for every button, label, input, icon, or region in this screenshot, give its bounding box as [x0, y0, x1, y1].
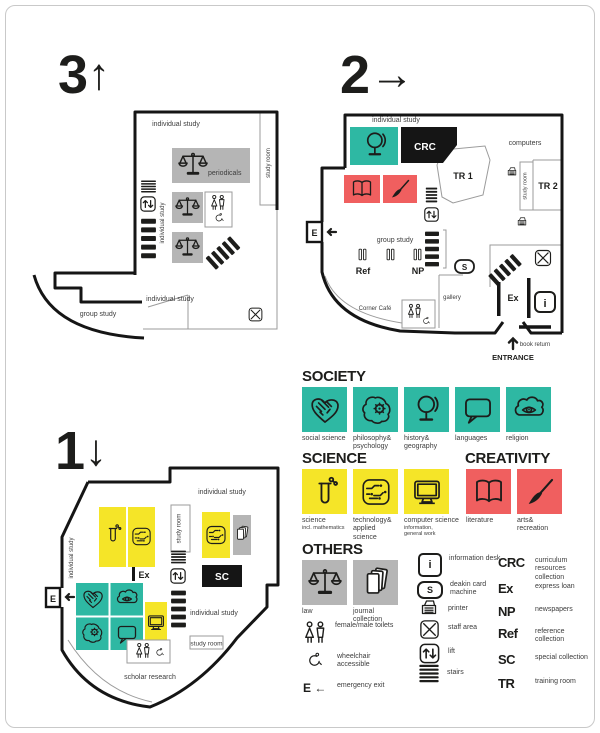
legend-item-np: NP newspapers	[498, 604, 595, 619]
periodicals-label: periodicals	[208, 170, 242, 177]
legend-item-toilets: female/male toilets	[302, 620, 397, 646]
reference-shelf-icon	[359, 249, 366, 260]
express-loan-wall	[132, 567, 135, 581]
express-loan-wall	[497, 282, 501, 316]
legend-item-arts-recreation: arts& recreation	[517, 469, 562, 534]
legend-label: science	[302, 517, 347, 525]
sc-code: SC	[498, 652, 528, 667]
science-stack	[99, 507, 126, 567]
legend-label: technology& applied science	[353, 517, 398, 542]
emergency-exit-icon: E ←	[303, 680, 330, 695]
entrance-arrow-icon	[509, 339, 517, 350]
legend-label: special collection	[535, 652, 595, 662]
stairs-icon	[418, 664, 440, 683]
tr1-label: TR 1	[453, 171, 473, 181]
toilets-room	[205, 192, 232, 227]
individual-study-label: individual study	[160, 202, 166, 243]
tr2-label: TR 2	[538, 181, 558, 191]
staff-area-icon	[249, 308, 262, 321]
handshake-icon	[308, 393, 342, 427]
legend-item-social-science: social science	[302, 387, 347, 452]
staff-area-icon	[418, 618, 441, 641]
others-boxes-row: law journal collection	[302, 560, 398, 625]
information-desk-glyph: i	[543, 298, 546, 310]
stairs-icon	[171, 551, 186, 564]
shelf-icon	[387, 249, 394, 260]
legend-label: languages	[455, 435, 500, 443]
ref-label: Ref	[356, 266, 372, 276]
gallery-label: gallery	[443, 295, 461, 301]
book-icon	[472, 475, 506, 509]
paintbrush-icon	[523, 475, 557, 509]
legend-item-tr: TR training room	[498, 676, 595, 691]
tr-code: TR	[498, 676, 528, 691]
creativity-row: literature arts& recreation	[466, 469, 562, 534]
card-machine-glyph: S	[462, 263, 468, 272]
legend-label: arts& recreation	[517, 517, 562, 534]
legend-item-science: science incl. mathematics	[302, 469, 347, 542]
legend-label: social science	[302, 435, 347, 443]
printer-icon	[518, 218, 526, 225]
corner-cafe-label: Corner Café	[359, 306, 392, 312]
globe-icon	[410, 393, 444, 427]
floor2-map: CRC Ref NP S Ex i E individual study com…	[305, 50, 595, 370]
social-science-stack	[76, 583, 109, 616]
lift-icon	[425, 208, 438, 221]
individual-study-label: individual study	[69, 537, 75, 578]
legend-item-law: law	[302, 560, 347, 625]
diagonal-stairs-icon	[488, 254, 522, 286]
technology-stack	[202, 512, 230, 558]
study-room-label: study room	[266, 148, 272, 178]
monitor-icon	[410, 475, 444, 509]
legend-label: computer science	[404, 517, 462, 525]
legend-item-languages: languages	[455, 387, 500, 452]
individual-study-label: individual study	[146, 296, 194, 303]
stairs-icon	[171, 591, 186, 628]
study-room-label: study room	[523, 172, 529, 200]
lift-icon	[141, 197, 155, 211]
legend-label: curriculum resources collection	[535, 555, 595, 582]
legend-item-ex: Ex express loan	[498, 581, 595, 596]
society-title: SOCIETY	[302, 368, 366, 385]
np-code: NP	[498, 604, 528, 619]
science-title: SCIENCE	[302, 450, 367, 467]
legend-item-emergency-exit: E ← emergency exit	[303, 680, 399, 695]
express-loan-wall	[527, 278, 531, 318]
scholar-research-label: scholar research	[124, 674, 176, 681]
left-arrow-icon	[328, 229, 336, 235]
group-study-label: group study	[80, 311, 117, 318]
wheelchair-icon	[305, 651, 324, 670]
legend-label: reference collection	[535, 626, 595, 645]
individual-study-label: individual study	[198, 489, 246, 496]
floor3-walls	[34, 112, 277, 338]
legend-label: religion	[506, 435, 551, 443]
computers-label: computers	[509, 140, 542, 147]
legend-label: express loan	[535, 581, 595, 591]
toilets-icon	[302, 620, 328, 646]
emergency-exit-label: E	[50, 594, 56, 604]
sc-label: SC	[215, 572, 229, 583]
legend-label: newspapers	[535, 604, 595, 614]
legend-item-technology: technology& applied science	[353, 469, 398, 542]
book-return-label: book return	[520, 342, 550, 348]
cloud-eye-icon	[512, 393, 546, 427]
crc-label: CRC	[414, 142, 436, 153]
legend-item-ref: Ref reference collection	[498, 626, 595, 645]
card-machine-icon: S	[417, 581, 443, 599]
lift-icon	[171, 569, 185, 583]
legend-label: literature	[466, 517, 511, 525]
stairs-icon	[141, 181, 156, 193]
legend-label: female/male toilets	[335, 620, 397, 630]
legend-item-crc: CRC curriculum resources collection	[498, 555, 595, 582]
science-row: science incl. mathematics technology& ap…	[302, 469, 449, 542]
floor3-map: periodicals individual study study room …	[30, 45, 300, 345]
legend-label: history& geography	[404, 435, 449, 452]
legend-item-religion: religion	[506, 387, 551, 452]
express-loan-label: Ex	[507, 293, 518, 303]
express-loan-label: Ex	[138, 570, 149, 580]
ref-code: Ref	[498, 626, 528, 641]
legend-item-philosophy-psychology: philosophy& psychology	[353, 387, 398, 452]
brain-gear-icon	[359, 393, 393, 427]
study-room-label: study room	[177, 514, 183, 544]
diagonal-stairs-icon	[205, 236, 240, 270]
individual-study-label: individual study	[152, 121, 200, 128]
legend-label: emergency exit	[337, 680, 399, 690]
crc-code: CRC	[498, 555, 528, 570]
society-row: social science philosophy& psychology hi…	[302, 387, 551, 452]
legend-sublabel: incl. mathematics	[302, 525, 347, 531]
stairs-icon	[425, 232, 439, 267]
test-tube-icon	[308, 475, 342, 509]
legend-item-literature: literature	[466, 469, 511, 534]
legend-sublabel: information, general work	[404, 525, 449, 537]
scales-icon	[308, 566, 342, 600]
group-study-label: group study	[377, 237, 414, 244]
stairs-icon	[426, 188, 437, 203]
legend-item-wheelchair: wheelchair accessible	[305, 651, 399, 670]
staff-area-icon	[536, 251, 551, 266]
legend-label: training room	[535, 676, 595, 686]
newspapers-shelf-icon	[414, 249, 421, 260]
creativity-title: CREATIVITY	[465, 450, 550, 467]
floor1-map: SC Ex E individual study study room indi…	[40, 455, 290, 723]
technology-stack	[128, 507, 155, 567]
np-label: NP	[412, 266, 425, 276]
journals-icon	[359, 566, 393, 600]
lift-icon	[418, 642, 441, 665]
legend-item-journal-collection: journal collection	[353, 560, 398, 625]
legend-item-staff-area: staff area	[418, 618, 510, 641]
entrance-label: ENTRANCE	[492, 353, 534, 362]
legend-item-stairs: stairs	[418, 664, 509, 683]
stairs-icon	[141, 219, 156, 258]
emergency-exit-label: E	[311, 228, 317, 238]
legend-label: law	[302, 608, 347, 616]
left-arrow-icon	[66, 594, 74, 600]
individual-study-label: individual study	[372, 117, 420, 124]
printer-icon	[508, 168, 516, 175]
others-title: OTHERS	[302, 541, 363, 558]
legend-item-lift: lift	[418, 642, 510, 665]
legend-item-history-geography: history& geography	[404, 387, 449, 452]
individual-study-label: individual study	[190, 610, 238, 617]
circuit-icon	[359, 475, 393, 509]
legend-label: wheelchair accessible	[337, 651, 399, 670]
ex-code: Ex	[498, 581, 528, 596]
information-desk-icon: i	[418, 553, 442, 577]
legend-item-sc: SC special collection	[498, 652, 595, 667]
study-room-label: study room	[190, 641, 222, 648]
legend-item-computer-science: computer science information, general wo…	[404, 469, 449, 542]
speech-bubble-icon	[461, 393, 495, 427]
